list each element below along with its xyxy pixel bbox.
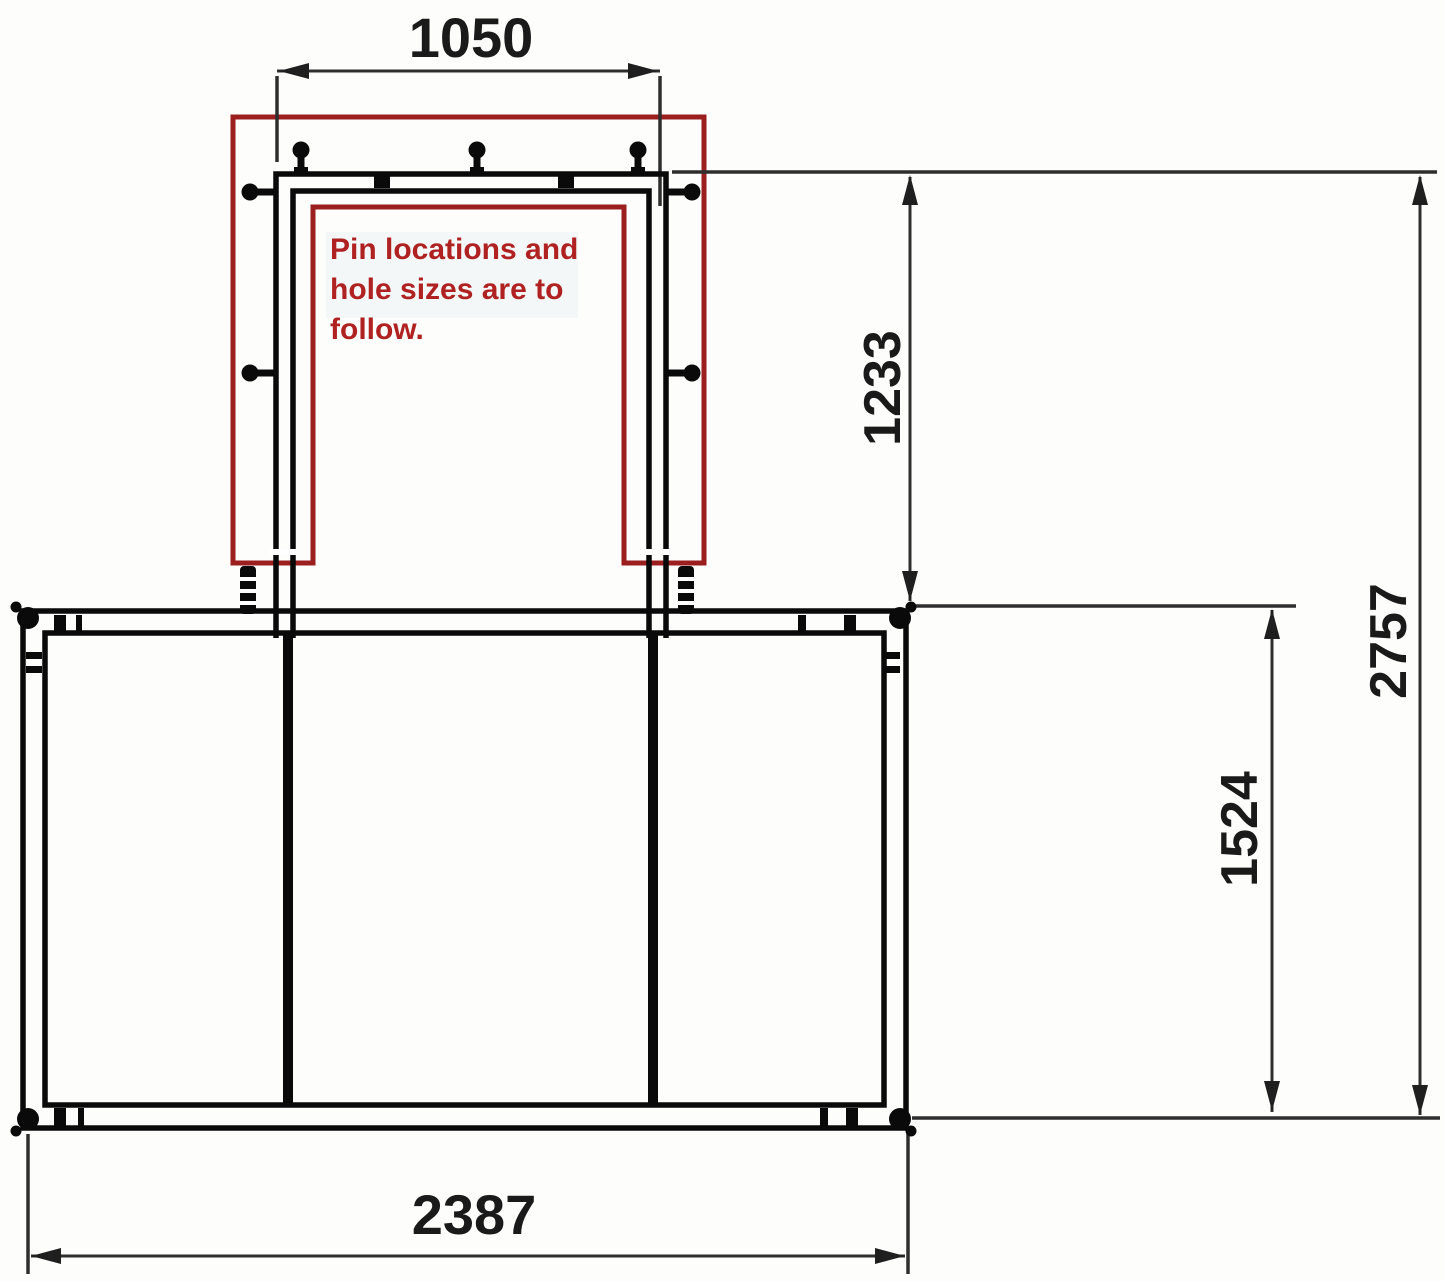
technical-drawing: Pin locations and hole sizes are to foll… (0, 0, 1445, 1281)
red-annotation-group: Pin locations and hole sizes are to foll… (233, 117, 704, 563)
panel-divider-left (283, 634, 293, 1106)
red-highlight-outline (233, 117, 704, 563)
arrow-2757-up (1412, 175, 1428, 205)
dim-label-frame-height: 1524 (1211, 771, 1269, 887)
dim-label-gate-height: 1233 (854, 330, 912, 446)
pin-top-left (293, 142, 310, 175)
main-frame-group (11, 602, 917, 1137)
dim-label-gate-width: 1050 (409, 6, 534, 69)
note-text-line-3: follow. (330, 313, 424, 346)
gate-rail-joint-2 (558, 173, 574, 188)
leg-break-right (646, 549, 672, 555)
arrow-2387-right (875, 1248, 905, 1264)
arrow-1233-up (902, 175, 918, 205)
arrow-1524-up (1264, 609, 1280, 639)
arrow-2757-down (1412, 1085, 1428, 1115)
arrow-1050-left (279, 63, 309, 79)
pin-right-upper (664, 184, 701, 201)
corner-ball-bottom-left (17, 1108, 39, 1130)
pin-top-middle (469, 142, 486, 175)
extension-lines-group (28, 76, 1440, 1274)
pin-left-lower (242, 365, 279, 382)
note-text-line-2: hole sizes are to (330, 273, 563, 306)
dim-label-overall-height: 2757 (1360, 583, 1418, 699)
note-text-line-1: Pin locations and (330, 233, 578, 266)
arrow-1524-down (1264, 1081, 1280, 1111)
arrow-1233-down (902, 571, 918, 601)
rail-joint-marks (26, 615, 900, 1126)
pin-right-lower (664, 365, 701, 382)
main-frame-outer (23, 611, 906, 1128)
main-frame-inner (45, 633, 884, 1105)
dimension-lines-group (31, 71, 1420, 1256)
leg-break-left (270, 549, 296, 555)
arrowheads-group (31, 63, 1428, 1264)
arrow-1050-right (628, 63, 658, 79)
dim-label-frame-width: 2387 (412, 1183, 537, 1246)
drawing-canvas: Pin locations and hole sizes are to foll… (0, 0, 1445, 1281)
pin-left-upper (242, 184, 279, 201)
panel-divider-right (648, 634, 658, 1106)
arrow-2387-left (31, 1248, 61, 1264)
pin-top-right (630, 142, 647, 175)
gate-rail-joint-1 (374, 173, 390, 188)
corner-fittings (11, 602, 917, 1137)
leg-sleeves (240, 566, 694, 614)
gate-top-pins (293, 142, 647, 175)
